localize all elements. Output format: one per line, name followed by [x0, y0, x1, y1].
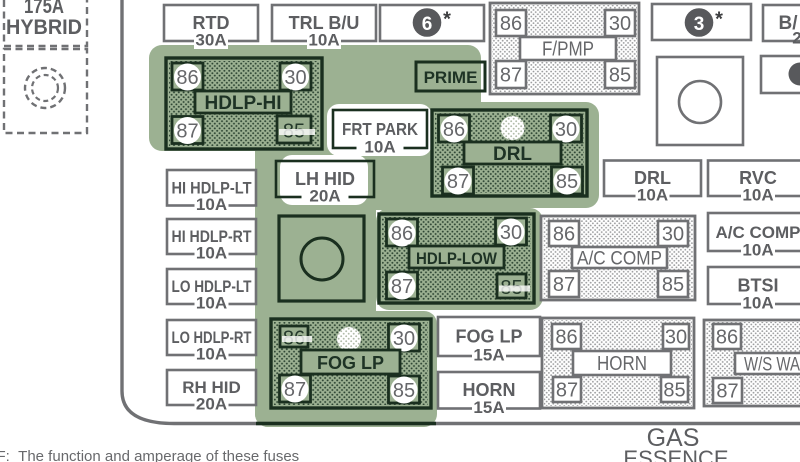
svg-text:30: 30	[500, 222, 522, 244]
svg-text:FRT PARK: FRT PARK	[342, 119, 418, 139]
svg-text:87: 87	[500, 65, 522, 87]
svg-text:87: 87	[391, 276, 413, 298]
svg-text:85: 85	[663, 380, 685, 402]
svg-text:86: 86	[716, 327, 738, 349]
svg-text:*: *	[715, 9, 723, 31]
svg-text:30: 30	[662, 224, 684, 246]
svg-text:DRL: DRL	[493, 144, 532, 165]
svg-text:10A: 10A	[637, 186, 668, 205]
svg-text:ESSENCE: ESSENCE	[623, 446, 728, 462]
svg-text:HYBRID: HYBRID	[6, 16, 82, 39]
svg-text:6: 6	[422, 14, 433, 35]
svg-text:30: 30	[665, 327, 687, 349]
svg-text:85: 85	[556, 171, 578, 193]
svg-text:87: 87	[447, 171, 469, 193]
svg-text:10A: 10A	[742, 241, 773, 260]
svg-text:20A: 20A	[309, 187, 340, 206]
svg-text:F: The function and amperage: F: The function and amperage of these fu…	[0, 448, 299, 462]
svg-text:86: 86	[176, 67, 198, 89]
svg-text:15A: 15A	[473, 346, 504, 365]
svg-text:87: 87	[716, 381, 738, 403]
svg-text:86: 86	[500, 13, 522, 35]
svg-text:85: 85	[609, 65, 631, 87]
svg-text:30: 30	[393, 328, 415, 350]
svg-text:86: 86	[553, 224, 575, 246]
svg-text:*: *	[443, 9, 451, 31]
svg-text:2: 2	[792, 29, 800, 48]
svg-text:85: 85	[393, 380, 415, 402]
svg-text:87: 87	[553, 274, 575, 296]
svg-text:15A: 15A	[473, 398, 504, 417]
svg-text:10A: 10A	[196, 195, 227, 214]
svg-text:30: 30	[284, 67, 306, 89]
svg-text:87: 87	[284, 379, 306, 401]
svg-text:86: 86	[443, 119, 465, 141]
svg-text:PRIME: PRIME	[424, 68, 478, 87]
svg-text:30A: 30A	[195, 31, 226, 50]
svg-text:HORN: HORN	[597, 353, 647, 375]
svg-text:86: 86	[391, 223, 413, 245]
svg-text:HDLP-LOW: HDLP-LOW	[416, 249, 498, 268]
svg-text:A/C COMP: A/C COMP	[577, 249, 662, 270]
svg-text:BTSI: BTSI	[737, 275, 778, 295]
svg-text:30: 30	[609, 13, 631, 35]
svg-text:3: 3	[694, 14, 705, 35]
svg-text:10A: 10A	[196, 294, 227, 313]
svg-text:10A: 10A	[308, 31, 339, 50]
svg-text:85: 85	[662, 274, 684, 296]
svg-text:20A: 20A	[196, 395, 227, 414]
svg-text:A/C COMP: A/C COMP	[716, 223, 800, 242]
svg-text:86: 86	[555, 327, 577, 349]
svg-text:10A: 10A	[196, 345, 227, 364]
svg-text:W/S WA: W/S WA	[744, 355, 800, 376]
svg-text:FOG LP: FOG LP	[456, 327, 523, 347]
svg-text:10A: 10A	[196, 244, 227, 263]
svg-text:10A: 10A	[364, 138, 395, 157]
svg-text:87: 87	[556, 380, 578, 402]
svg-text:F/PMP: F/PMP	[542, 39, 594, 61]
svg-text:87: 87	[176, 121, 198, 143]
svg-text:10A: 10A	[742, 186, 773, 205]
svg-text:FOG LP: FOG LP	[317, 353, 384, 373]
svg-text:30: 30	[555, 119, 577, 141]
svg-text:10A: 10A	[742, 294, 773, 313]
svg-text:HDLP-HI: HDLP-HI	[204, 93, 281, 114]
